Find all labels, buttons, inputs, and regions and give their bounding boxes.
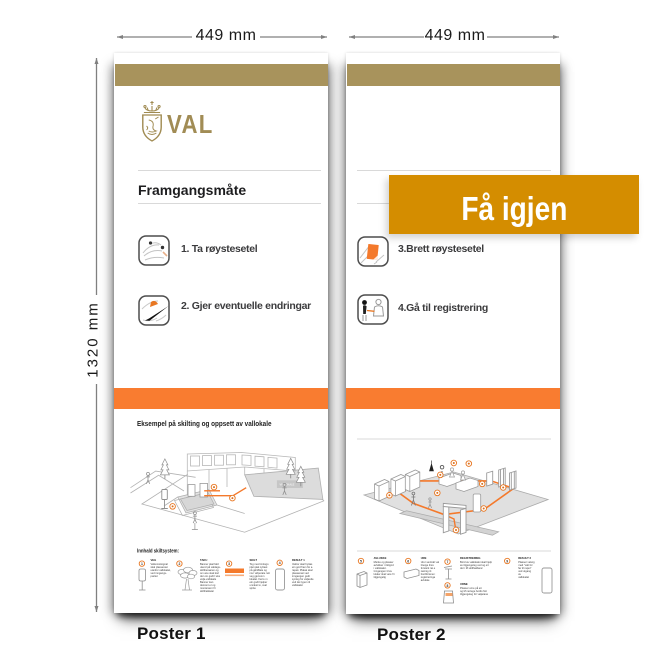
svg-text:avlukke: avlukke xyxy=(421,578,430,582)
svg-text:5: 5 xyxy=(360,559,362,563)
svg-text:Innhald skiltsystem:: Innhald skiltsystem: xyxy=(137,549,179,555)
svg-text:URNE: URNE xyxy=(460,582,468,586)
svg-text:TAKU: TAKU xyxy=(200,558,207,562)
svg-text:SKILT: SKILT xyxy=(250,558,258,562)
svg-text:3: 3 xyxy=(228,562,230,566)
svg-text:tilgjengelig: tilgjengelig xyxy=(374,575,387,579)
svg-text:der i M skilthaldarar: der i M skilthaldarar xyxy=(460,566,483,570)
svg-text:1: 1 xyxy=(141,562,143,566)
svg-text:VEG: VEG xyxy=(151,558,157,562)
svg-text:RESULT 1: RESULT 1 xyxy=(292,558,305,562)
svg-text:tilgjengeleg for valjarane: tilgjengeleg for valjarane xyxy=(460,592,489,596)
svg-text:VALLOKALE: VALLOKALE xyxy=(280,482,295,486)
svg-text:AVLUKKE: AVLUKKE xyxy=(374,556,387,560)
svg-text:vallokalet: vallokalet xyxy=(518,575,529,579)
svg-text:REGISTRERING: REGISTRERING xyxy=(460,556,480,560)
svg-text:6: 6 xyxy=(407,559,409,563)
svg-text:4: 4 xyxy=(279,561,281,565)
svg-text:vallokalet: vallokalet xyxy=(292,583,303,587)
svg-text:URE: URE xyxy=(421,556,427,560)
svg-text:sprite: sprite xyxy=(250,586,257,590)
svg-text:9: 9 xyxy=(506,559,508,563)
svg-text:7: 7 xyxy=(447,560,449,564)
svg-text:skilthaldarar: skilthaldarar xyxy=(200,589,214,593)
svg-text:RESULT 2: RESULT 2 xyxy=(518,556,531,560)
svg-text:8: 8 xyxy=(447,584,449,588)
svg-text:2: 2 xyxy=(178,562,180,566)
svg-text:Eksempel på skilting og oppset: Eksempel på skilting og oppsett av vallo… xyxy=(137,419,272,428)
svg-text:partiet: partiet xyxy=(151,574,158,578)
